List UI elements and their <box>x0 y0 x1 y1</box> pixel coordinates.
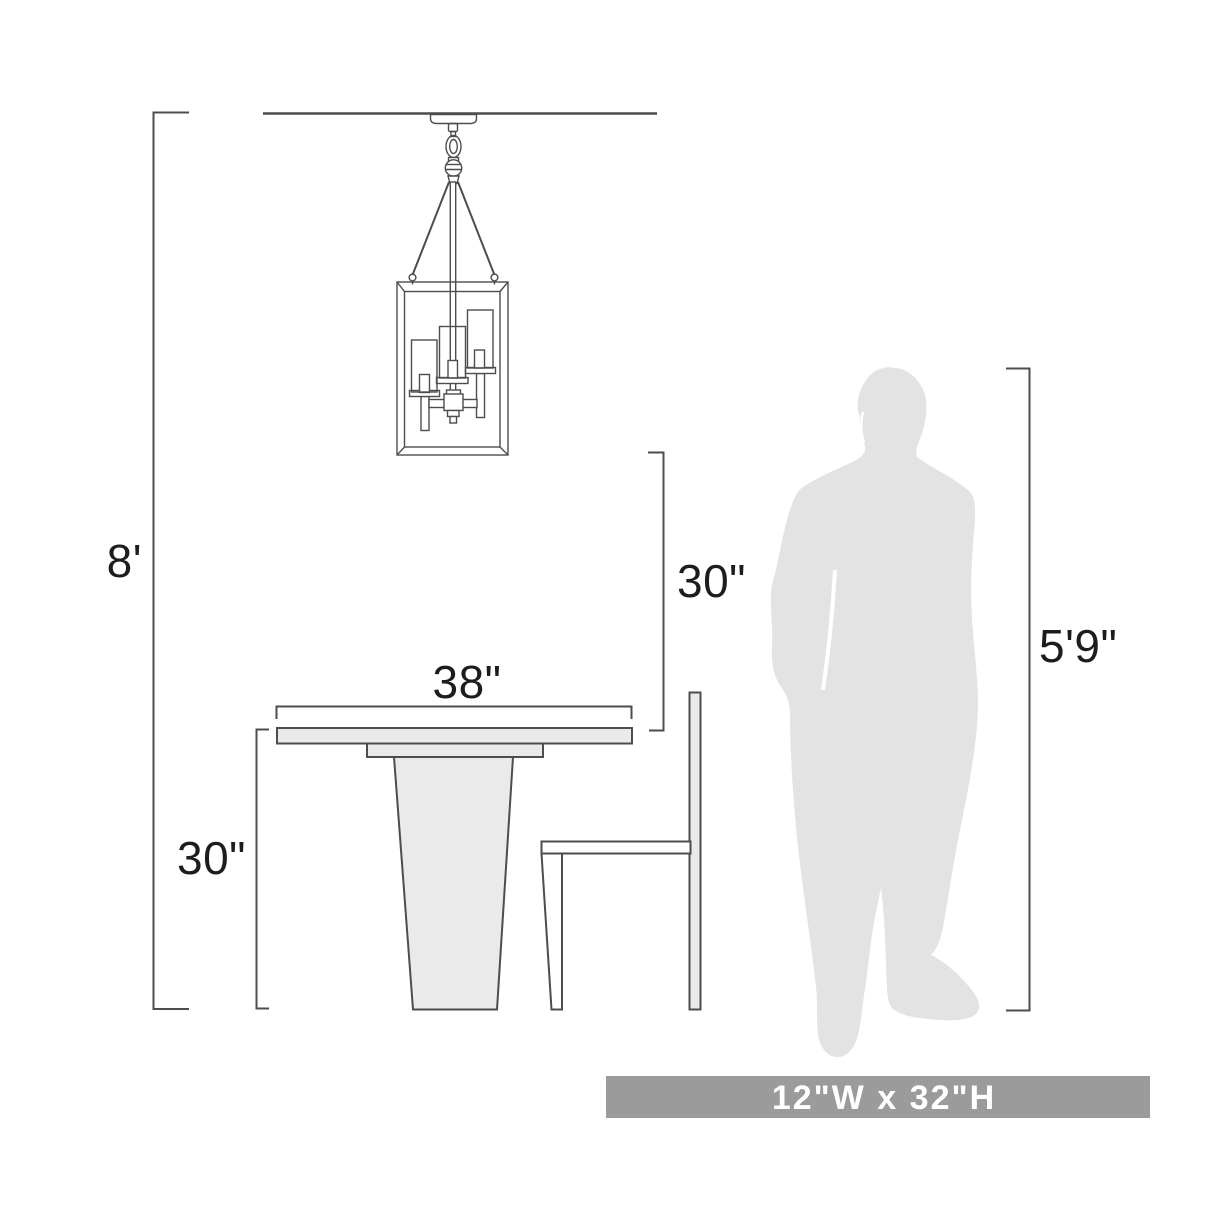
hub-finial <box>450 417 457 424</box>
rod-connector-left <box>409 274 416 281</box>
dimension-38in-bracket <box>277 707 632 719</box>
rod-connector-right <box>491 274 498 281</box>
product-scale-diagram: 8' 30" 38" 30" 5'9" 12"W x 32"H <box>0 0 1214 1214</box>
table-pedestal <box>394 757 513 1010</box>
size-banner-label: 12"W x 32"H <box>772 1079 996 1117</box>
suspension-rod-left <box>413 182 450 275</box>
table-top <box>277 728 632 744</box>
dimension-5ft9in-label: 5'9" <box>1039 620 1117 672</box>
pendant-light-drawing <box>397 115 508 456</box>
candle-middle <box>448 361 458 379</box>
chain-link <box>449 124 458 132</box>
table-drawing <box>277 728 632 1010</box>
dimension-30in-clearance-label: 30" <box>677 555 746 607</box>
dimension-30in-table-label: 30" <box>177 832 246 884</box>
person-silhouette-shape <box>771 367 979 1057</box>
arm-left-horizontal <box>429 400 445 408</box>
suspension-rod-right <box>458 182 495 275</box>
arm-left-vertical <box>421 397 429 431</box>
dimension-30in-clearance: 30" <box>649 453 746 731</box>
dimension-38in-table-width: 38" <box>277 656 632 718</box>
table-apron <box>367 744 543 758</box>
chair-seat <box>542 842 691 854</box>
dimension-38in-label: 38" <box>433 656 502 708</box>
size-banner: 12"W x 32"H <box>606 1076 1150 1118</box>
arm-right-horizontal <box>463 400 478 408</box>
dimension-5ft9in-bracket <box>1007 369 1030 1011</box>
dimension-30in-table-bracket <box>257 730 269 1009</box>
scale-diagram-svg: 8' 30" 38" 30" 5'9" 12"W x 32"H <box>0 0 1214 1214</box>
person-silhouette <box>771 367 979 1057</box>
dimension-8ft-label: 8' <box>107 535 142 587</box>
dimension-30in-table-height: 30" <box>177 730 268 1009</box>
dimension-8ft: 8' <box>107 113 188 1010</box>
canopy-drawing <box>431 115 477 124</box>
hub <box>444 394 463 411</box>
candle-right <box>475 350 485 368</box>
dimension-5ft9in-person: 5'9" <box>1007 369 1117 1011</box>
dimension-30in-clearance-bracket <box>649 453 664 731</box>
chair-front-leg <box>542 854 563 1010</box>
hub-bottom-plate <box>448 411 460 417</box>
arm-right-vertical <box>477 374 485 418</box>
hang-loop-inner <box>450 140 458 154</box>
candle-left <box>420 375 430 393</box>
hanger-knob <box>445 160 461 176</box>
